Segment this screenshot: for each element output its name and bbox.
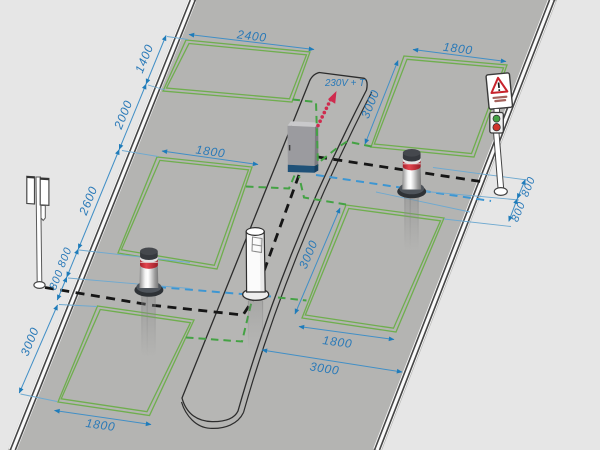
svg-text:230V + T: 230V + T [324, 78, 366, 89]
